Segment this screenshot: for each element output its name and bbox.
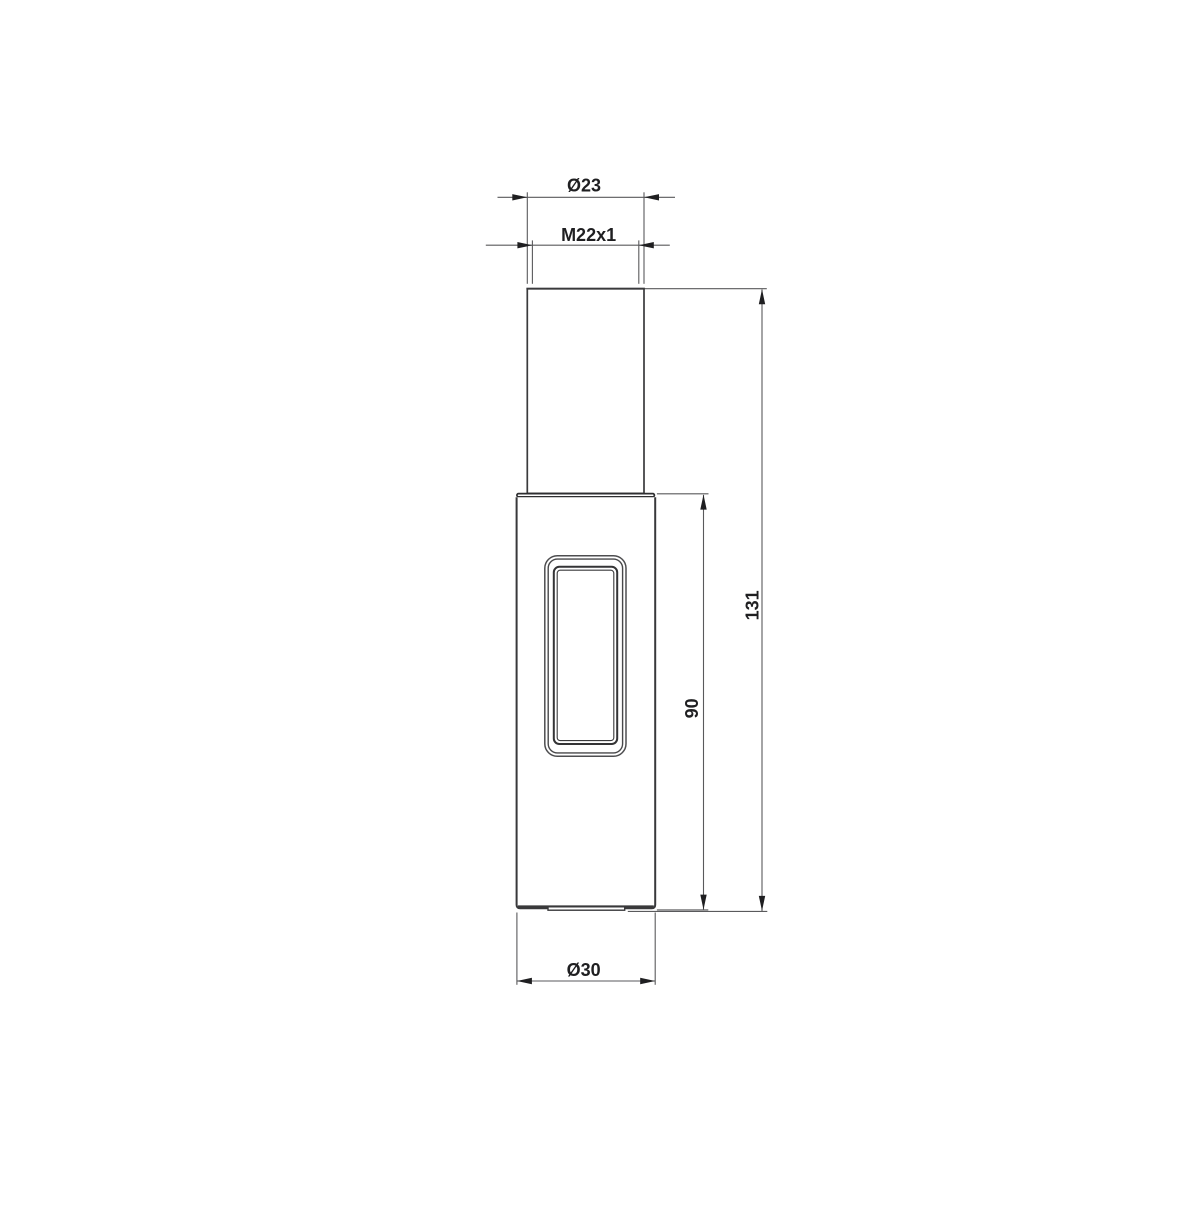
svg-text:M22x1: M22x1 [561, 225, 616, 245]
svg-text:90: 90 [682, 698, 702, 718]
svg-text:131: 131 [742, 590, 762, 620]
svg-text:Ø30: Ø30 [567, 960, 601, 980]
svg-text:Ø23: Ø23 [567, 176, 601, 196]
